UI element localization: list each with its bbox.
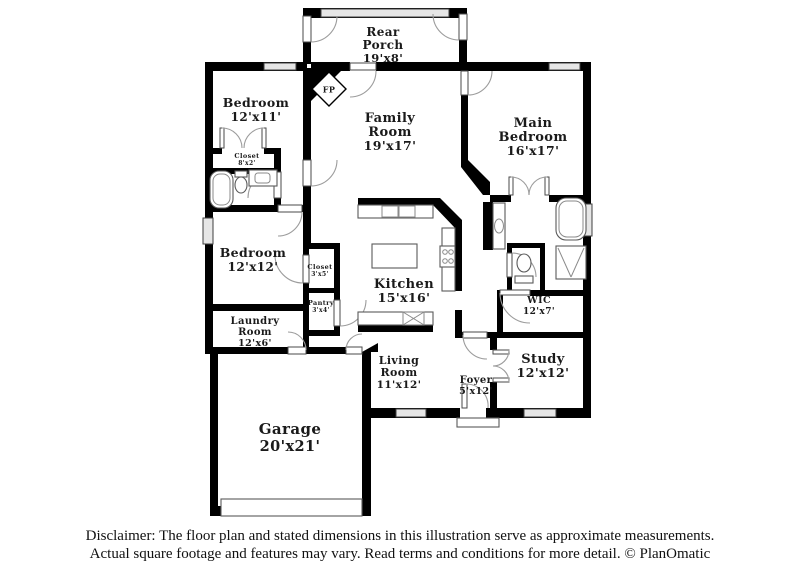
svg-text:Garage: Garage (259, 420, 322, 438)
room-label-fireplace: FP (323, 85, 336, 95)
svg-text:12'x12': 12'x12' (517, 365, 570, 380)
svg-text:19'x17': 19'x17' (364, 138, 417, 153)
svg-text:3'x5': 3'x5' (311, 271, 329, 278)
svg-text:Family: Family (365, 111, 416, 126)
garage-door (221, 499, 362, 516)
room-label-closet1: Closet 8'x2' (234, 152, 259, 167)
svg-text:15'x16': 15'x16' (378, 290, 431, 305)
door-leaf (220, 128, 224, 148)
svg-text:12'x7': 12'x7' (523, 307, 555, 317)
room-label-living-room: Living Room 11'x12' (377, 354, 422, 391)
door-arc (244, 128, 264, 148)
room-label-laundry: Laundry Room 12'x6' (231, 316, 281, 349)
door-leaf (303, 16, 311, 42)
room-label-closet2: Closet 3'x5' (307, 263, 332, 278)
kitchen-counter (358, 205, 433, 218)
room-label-bedroom2: Bedroom 12'x12' (220, 245, 287, 274)
door-arc (350, 71, 376, 97)
svg-text:Foyer: Foyer (460, 375, 493, 386)
door-leaf (459, 14, 467, 40)
door-arc (311, 16, 337, 42)
door-arc (511, 177, 529, 195)
door-leaf (463, 332, 487, 338)
floor-plan-svg: Rear Porch 19'x8' Bedroom 12'x11' Family… (0, 0, 800, 582)
door-leaf (346, 347, 362, 354)
door-arc (468, 71, 492, 95)
svg-text:Bedroom: Bedroom (220, 245, 287, 260)
svg-text:Pantry: Pantry (308, 299, 334, 307)
svg-text:Room: Room (380, 366, 417, 379)
door-leaf (461, 71, 468, 95)
window (524, 409, 556, 417)
door-arc (463, 335, 487, 359)
door-leaf (493, 378, 509, 382)
svg-text:11'x12': 11'x12' (377, 379, 422, 391)
svg-text:Rear: Rear (366, 25, 400, 39)
svg-text:WIC: WIC (526, 295, 551, 306)
disclaimer-line-2: Actual square footage and features may v… (90, 546, 711, 562)
room-label-study: Study 12'x12' (517, 352, 570, 380)
room-label-rear-porch: Rear Porch 19'x8' (362, 25, 403, 65)
svg-text:5'x12': 5'x12' (459, 386, 493, 397)
toilet-tank-icon (515, 276, 533, 283)
svg-text:12'x12': 12'x12' (228, 260, 279, 274)
window (321, 9, 449, 17)
svg-text:Room: Room (238, 327, 272, 338)
door-arc (529, 177, 547, 195)
door-arc (278, 212, 302, 236)
svg-text:12'x11': 12'x11' (231, 110, 282, 124)
door-leaf (262, 128, 266, 148)
floor-plan-page: Rear Porch 19'x8' Bedroom 12'x11' Family… (0, 0, 800, 582)
svg-text:Bedroom: Bedroom (223, 95, 290, 110)
room-label-pantry: Pantry 3'x4' (308, 299, 334, 314)
svg-text:19'x8': 19'x8' (363, 51, 403, 65)
toilet-tank-icon (235, 171, 247, 177)
toilet-icon (517, 254, 531, 272)
door-arc (222, 128, 242, 148)
door-leaf (288, 347, 306, 354)
door-arc (311, 160, 337, 186)
svg-text:20'x21': 20'x21' (260, 438, 321, 455)
shower-icon (556, 246, 586, 279)
room-label-kitchen: Kitchen 15'x16' (374, 277, 434, 305)
door-leaf (278, 205, 302, 212)
door-leaf (493, 350, 509, 354)
room-label-main-bedroom: Main Bedroom 16'x17' (498, 116, 567, 158)
svg-text:12'x6': 12'x6' (238, 338, 272, 349)
toilet-icon (235, 177, 247, 193)
door-leaf (545, 177, 549, 195)
svg-text:16'x17': 16'x17' (507, 143, 560, 158)
room-label-bedroom1: Bedroom 12'x11' (223, 95, 290, 124)
vanity-icon (249, 170, 277, 186)
disclaimer: Disclaimer: The floor plan and stated di… (86, 528, 715, 562)
front-step (457, 418, 499, 427)
svg-text:FP: FP (323, 85, 336, 95)
room-label-garage: Garage 20'x21' (259, 420, 322, 455)
door-leaf (303, 160, 311, 186)
door-leaf (334, 300, 340, 326)
room-labels: Rear Porch 19'x8' Bedroom 12'x11' Family… (220, 25, 570, 455)
door-leaf (509, 177, 513, 195)
svg-text:8'x2': 8'x2' (238, 160, 256, 167)
svg-text:Closet: Closet (307, 263, 332, 271)
window (203, 218, 213, 244)
door-leaf (500, 290, 530, 295)
stove-icon (440, 246, 455, 267)
door-leaf (507, 253, 512, 277)
svg-text:Porch: Porch (362, 38, 403, 52)
room-label-family-room: Family Room 19'x17' (364, 111, 417, 153)
window (264, 63, 296, 70)
svg-text:Main: Main (514, 116, 553, 131)
window (396, 409, 426, 417)
room-label-foyer: Foyer 5'x12' (459, 375, 493, 397)
svg-text:3'x4': 3'x4' (312, 307, 330, 314)
window (549, 63, 580, 70)
svg-text:Closet: Closet (234, 152, 259, 160)
disclaimer-line-1: Disclaimer: The floor plan and stated di… (86, 528, 715, 544)
room-label-wic: WIC 12'x7' (523, 295, 555, 317)
kitchen-island (372, 244, 417, 268)
svg-text:Laundry: Laundry (231, 316, 281, 327)
